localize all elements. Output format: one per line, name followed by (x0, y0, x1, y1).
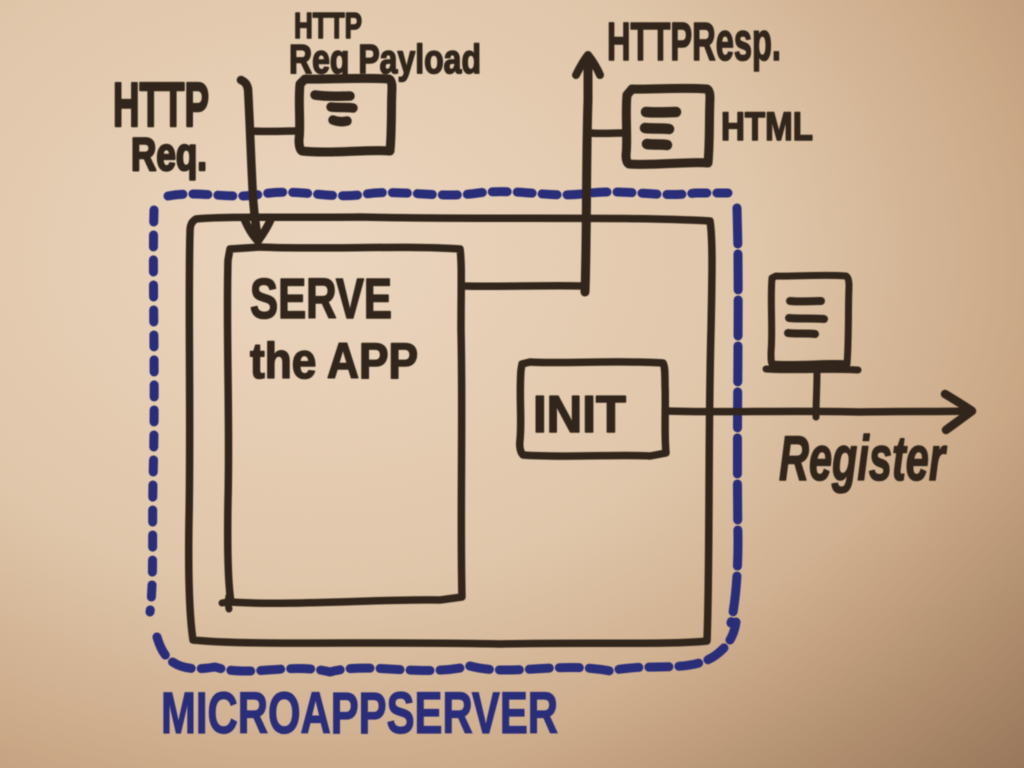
svg-text:Req.: Req. (131, 128, 207, 180)
svg-text:Register: Register (779, 424, 947, 494)
svg-text:HTML: HTML (721, 105, 813, 149)
svg-text:the APP: the APP (250, 333, 418, 389)
svg-text:SERVE: SERVE (250, 267, 392, 331)
svg-text:INIT: INIT (533, 386, 626, 444)
svg-text:MICROAPPSERVER: MICROAPPSERVER (161, 681, 558, 746)
svg-text:HTTPResp.: HTTPResp. (607, 12, 781, 72)
svg-text:Req Payload: Req Payload (289, 36, 481, 82)
